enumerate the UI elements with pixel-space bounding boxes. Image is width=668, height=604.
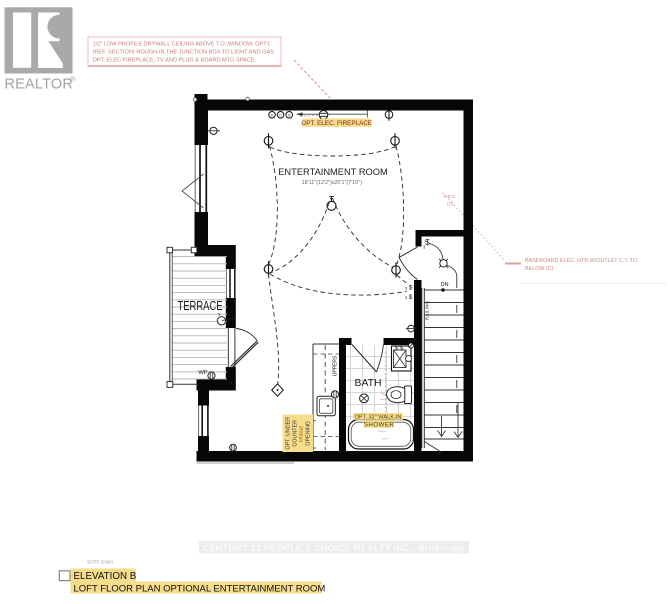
svg-text:LOFT FLOOR PLAN OPTIONAL ENTER: LOFT FLOOR PLAN OPTIONAL ENTERTAINMENT R… [74, 583, 326, 594]
svg-text:SHOWER: SHOWER [364, 421, 394, 428]
svg-text:RAILING: RAILING [424, 301, 430, 320]
svg-text:P.B.O: P.B.O [444, 194, 456, 199]
svg-text:$: $ [409, 285, 413, 292]
svg-text:OPT. ELEC FIREPLACE, TV AND PL: OPT. ELEC FIREPLACE, TV AND PLUG & BOARD… [93, 58, 257, 64]
svg-text:3: 3 [405, 295, 408, 300]
svg-text:(C): (C) [447, 201, 454, 206]
svg-text:TERRACE: TERRACE [178, 299, 223, 313]
svg-text:$ $: $ $ [395, 346, 404, 352]
svg-text:®: ® [70, 75, 76, 84]
svg-text:OPT. 32" WALK-IN: OPT. 32" WALK-IN [355, 415, 402, 421]
svg-text:18'11"(12'2")x20'1"(7'10"): 18'11"(12'2")x20'1"(7'10") [302, 180, 362, 186]
svg-text:D: D [271, 113, 274, 118]
svg-text:ELEVATION B: ELEVATION B [74, 571, 137, 582]
svg-text:DN: DN [440, 282, 448, 288]
svg-text:ENTERTAINMENT ROOM: ENTERTAINMENT ROOM [278, 167, 388, 177]
svg-text:C: C [279, 113, 282, 118]
svg-text:CENTURY 21 PEOPLE'S CHOICE REA: CENTURY 21 PEOPLE'S CHOICE REALTY INC., … [203, 543, 466, 553]
svg-text:BELOW (C): BELOW (C) [525, 266, 554, 272]
svg-text:WP: WP [198, 370, 207, 376]
svg-text:3: 3 [405, 286, 408, 291]
svg-text:1/2" LOW PROFILE DRYWALL CEILI: 1/2" LOW PROFILE DRYWALL CEILING ABOVE T… [93, 42, 271, 48]
svg-text:SOTF-EN01: SOTF-EN01 [87, 560, 114, 566]
svg-text:REALTOR: REALTOR [5, 77, 74, 93]
svg-text:UPPERS: UPPERS [333, 355, 339, 376]
svg-text:OPT. ELEC. FIREPLACE: OPT. ELEC. FIREPLACE [301, 120, 372, 127]
svg-text:BATH: BATH [355, 378, 382, 389]
svg-text:$: $ [425, 238, 430, 247]
svg-text:BASEBOARD ELEC. HTR W/OUTLET C: BASEBOARD ELEC. HTR W/OUTLET C.T. TO [525, 258, 637, 264]
svg-text:S: S [288, 113, 291, 118]
svg-text:(REF. SECTION) ROUGH-IN THE JU: (REF. SECTION) ROUGH-IN THE JUNCTION BOX… [93, 50, 275, 56]
svg-text:$: $ [409, 294, 413, 301]
svg-text:OPENING: OPENING [305, 421, 311, 446]
svg-text:FRIDGE: FRIDGE [298, 426, 303, 443]
svg-text:OPT. UNDER: OPT. UNDER [285, 417, 291, 450]
